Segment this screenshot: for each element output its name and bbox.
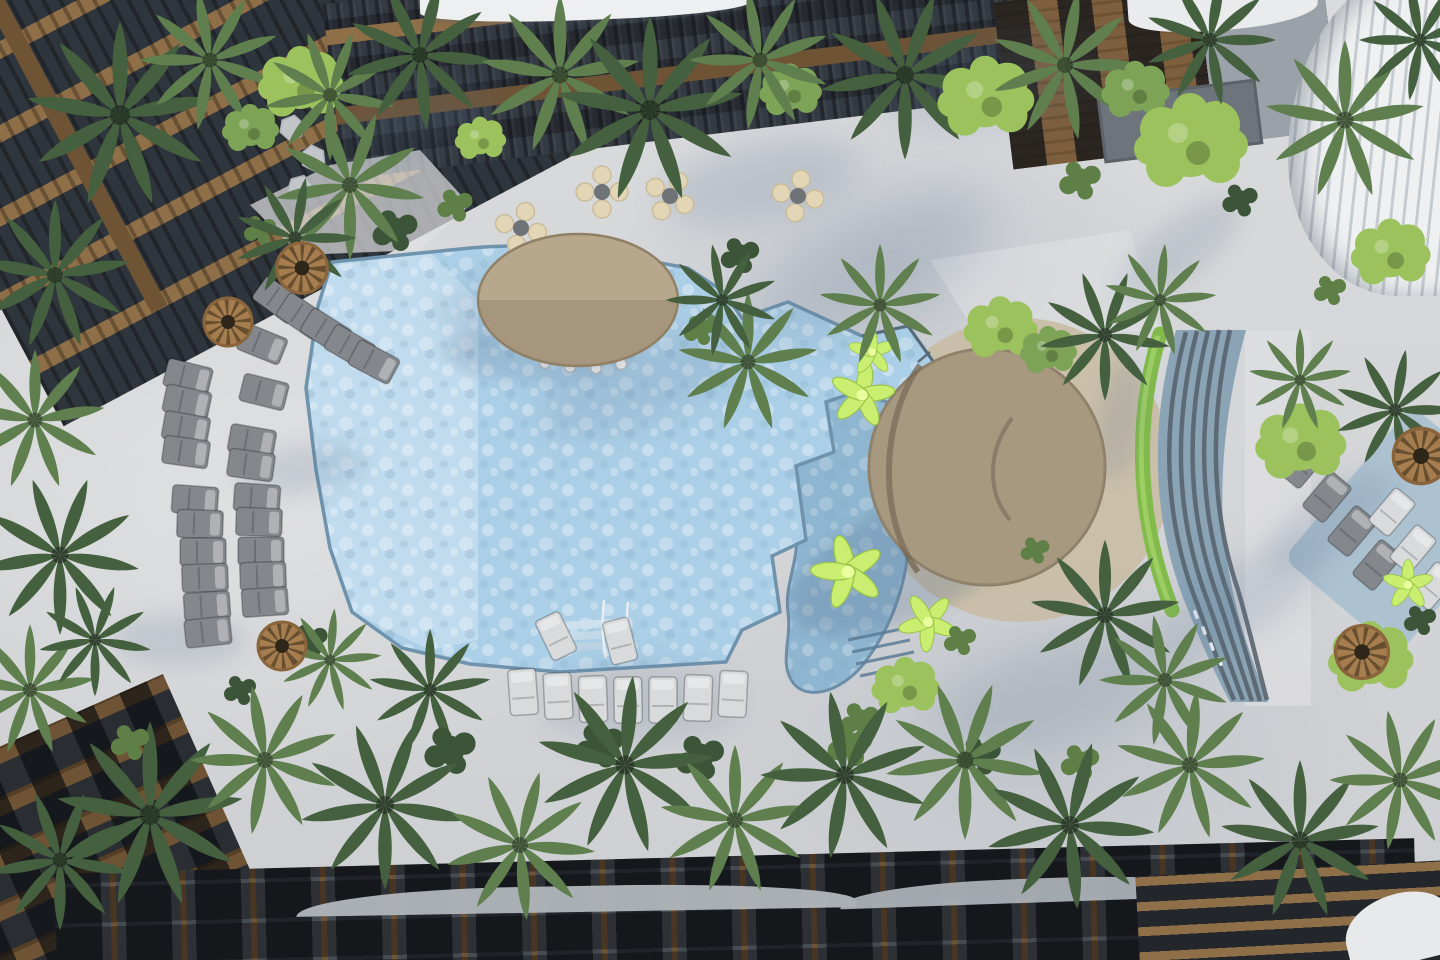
resort-aerial-render <box>0 0 1440 960</box>
lounger-stamp <box>177 509 224 539</box>
lounger-stamp <box>184 616 233 649</box>
lounger-stamp <box>241 586 289 617</box>
lounger-stamp <box>683 675 713 722</box>
palm-stamp <box>26 21 214 206</box>
lounger-stamp <box>507 668 538 716</box>
lounger-stamp <box>238 373 289 411</box>
lounger-stamp <box>182 563 229 593</box>
tree-stamp <box>871 657 939 713</box>
bush-stamp <box>1059 162 1101 200</box>
lounger-stamp <box>180 538 226 566</box>
palm-stamp <box>0 200 130 348</box>
palm-stamp <box>0 321 134 518</box>
palm-stamp <box>1305 684 1440 874</box>
palm-stamp <box>1265 40 1425 197</box>
lounger-stamp <box>236 507 283 537</box>
tree-stamp <box>1351 219 1431 285</box>
lounger-stamp <box>718 670 748 717</box>
palm-stamp <box>1338 0 1440 122</box>
scene-svg <box>0 0 1440 960</box>
palm-stamp <box>672 0 850 149</box>
lounger-stamp <box>226 448 275 482</box>
lounger-stamp <box>161 435 210 469</box>
palm-stamp <box>272 690 501 920</box>
cocoon-stamp <box>276 242 329 295</box>
palm-stamp <box>56 721 244 906</box>
bush-stamp <box>1314 276 1346 305</box>
lounger-stamp <box>543 672 573 719</box>
tree-stamp <box>222 104 279 151</box>
